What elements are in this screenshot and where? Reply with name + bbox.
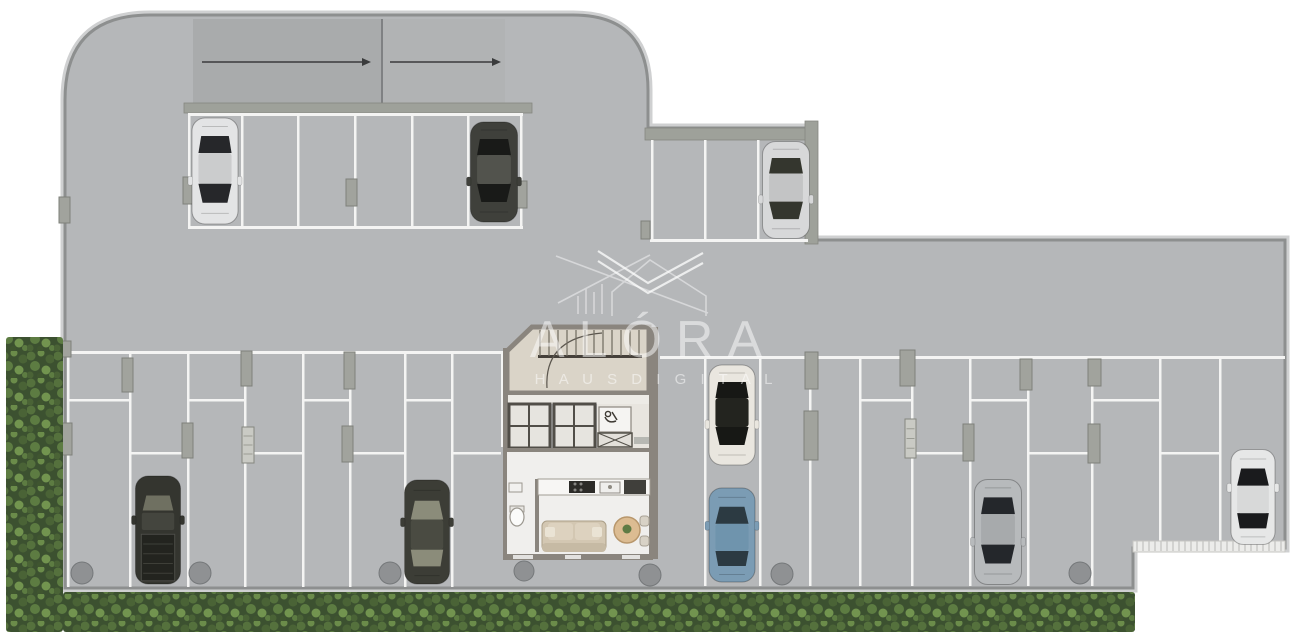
ramp-lane-right <box>382 19 505 103</box>
vent-stub <box>905 419 916 458</box>
round-column <box>189 562 211 584</box>
parking-line <box>188 113 191 229</box>
parking-split-line <box>913 452 969 455</box>
parking-line <box>704 140 707 240</box>
wall-stub <box>963 424 974 461</box>
stove <box>569 481 595 493</box>
parking-line <box>809 356 812 586</box>
parking-line <box>411 113 414 229</box>
car-silver-sedan <box>759 142 814 239</box>
sofa-back <box>542 543 606 552</box>
wall-stub <box>1088 424 1100 463</box>
wall-stub <box>346 179 357 206</box>
round-column <box>514 561 534 581</box>
car-blue-sedan <box>705 488 759 582</box>
window <box>622 555 640 559</box>
wall-stub <box>805 352 818 389</box>
round-column <box>379 562 401 584</box>
parking-split-line <box>1161 452 1219 455</box>
parking-line <box>467 113 470 229</box>
wall-stub <box>344 352 355 389</box>
wall-stub <box>59 197 70 223</box>
car-white-sedan <box>188 118 242 224</box>
ramp-lane-left <box>193 19 382 103</box>
stove-burner <box>580 483 583 486</box>
parking-line <box>1091 356 1094 586</box>
toilet <box>510 508 524 526</box>
round-column <box>639 564 661 586</box>
round-column <box>1069 562 1091 584</box>
wall-stub <box>182 423 193 458</box>
parking-line <box>911 356 914 586</box>
wall-segment <box>634 437 649 444</box>
parking-line <box>759 356 762 586</box>
wall-stub <box>900 350 915 386</box>
hedge <box>6 337 63 632</box>
parking-line <box>297 113 300 229</box>
parking-split-line <box>351 452 404 455</box>
parking-split-line <box>69 399 129 402</box>
wall-stub <box>1020 359 1032 390</box>
wall-segment <box>645 128 816 140</box>
wall-stub <box>641 221 650 239</box>
watermark-brand: ALÓRA <box>530 311 776 369</box>
parking-line <box>520 113 523 229</box>
parking-line <box>67 351 70 587</box>
parking-split-line <box>131 452 187 455</box>
sofa-pillow <box>545 527 555 537</box>
hedge <box>63 592 1135 632</box>
car-black-sedan <box>467 122 522 222</box>
unit-wall <box>503 448 653 452</box>
parking-split-line <box>453 452 501 455</box>
window <box>565 555 581 559</box>
parking-line <box>969 356 972 586</box>
car-dark-olive <box>401 480 454 584</box>
accessible-wc <box>599 407 631 432</box>
ramp-divider-line <box>381 19 383 103</box>
parking-line <box>187 351 190 587</box>
floor-plan-svg: ALÓRA H A U S D I G I T A L <box>0 0 1300 643</box>
window <box>513 555 533 559</box>
kitchen-cabinet <box>624 480 646 494</box>
parking-line <box>650 239 808 242</box>
vent-stub <box>242 427 254 463</box>
table-plant <box>623 525 632 534</box>
wall-stub <box>804 411 818 460</box>
parking-split-line <box>971 399 1027 402</box>
chair <box>640 516 649 526</box>
parking-split-line <box>189 399 244 402</box>
bath-sink <box>509 483 522 492</box>
parking-line <box>451 351 454 587</box>
wall-stub <box>1088 359 1101 386</box>
parking-line <box>651 140 654 240</box>
parking-split-line <box>406 399 451 402</box>
parking-line <box>67 351 503 354</box>
parking-split-line <box>861 399 911 402</box>
parking-split-line <box>1029 452 1091 455</box>
parking-line <box>1159 356 1162 546</box>
pickup-truck-dark <box>132 476 185 584</box>
wall-segment <box>184 103 532 113</box>
parking-line <box>859 356 862 586</box>
chair <box>640 536 649 546</box>
stove-burner <box>574 489 577 492</box>
wall-stub <box>122 358 133 392</box>
sink-drain <box>608 485 612 489</box>
parking-line <box>757 140 760 240</box>
parking-line <box>302 351 305 587</box>
parking-line <box>241 113 244 229</box>
watermark-tagline: H A U S D I G I T A L <box>535 371 778 388</box>
parking-line <box>704 356 707 586</box>
parking-line <box>1219 356 1222 546</box>
wall-stub <box>342 426 353 462</box>
car-silver-sedan <box>971 480 1026 585</box>
stove-burner <box>580 489 583 492</box>
parking-split-line <box>1093 399 1159 402</box>
round-column <box>771 563 793 585</box>
parking-line <box>354 113 357 229</box>
floor-plan-canvas: ALÓRA H A U S D I G I T A L <box>0 0 1300 643</box>
stove-burner <box>574 483 577 486</box>
parking-split-line <box>304 399 349 402</box>
wall-stub <box>241 351 252 386</box>
round-column <box>71 562 93 584</box>
sofa-pillow <box>592 527 602 537</box>
car-white-coupe <box>1227 450 1279 545</box>
